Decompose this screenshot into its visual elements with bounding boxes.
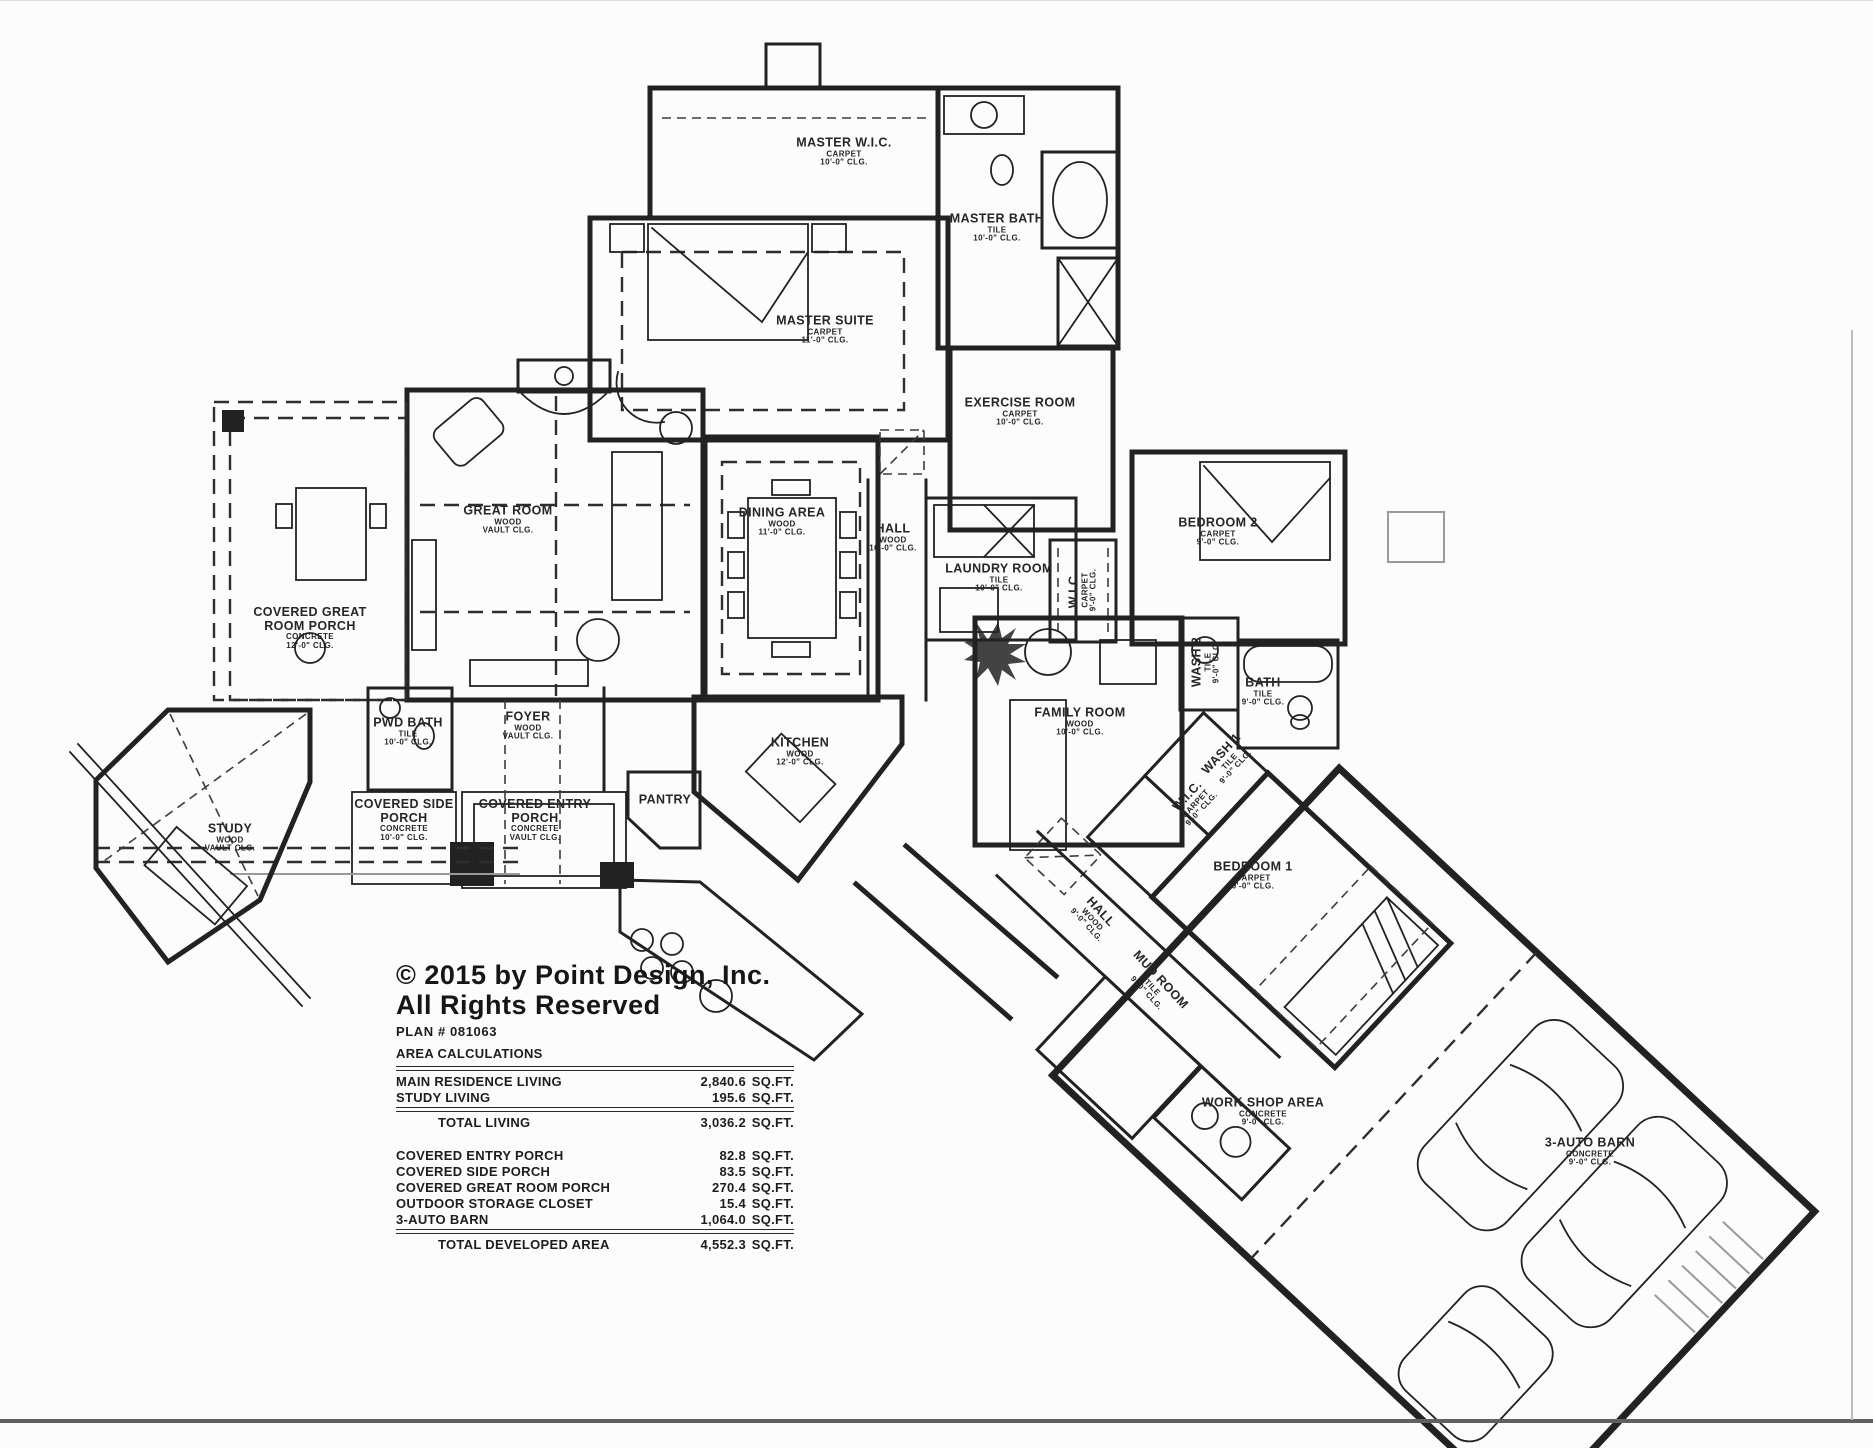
copyright-line2: All Rights Reserved bbox=[396, 990, 771, 1020]
room-label-dining-area: DINING AREAWOOD11'-0" CLG. bbox=[707, 507, 857, 538]
room-label-wic-family: W.I.C.CARPET9'-0" CLG. bbox=[1132, 737, 1257, 868]
room-label-family-room: FAMILY ROOMWOOD10'-0" CLG. bbox=[1005, 707, 1155, 738]
room-label-wic-hall: W.I.C.CARPET9'-0" CLG. bbox=[1068, 515, 1099, 665]
room-label-bedroom-2: BEDROOM 2CARPET9'-0" CLG. bbox=[1143, 517, 1293, 548]
area-row-entry-porch: COVERED ENTRY PORCH 82.8 SQ.FT. bbox=[396, 1148, 794, 1163]
room-label-covered-great-room-porch: COVERED GREAT ROOM PORCHCONCRETE12'-0" C… bbox=[235, 606, 385, 650]
room-label-covered-entry-porch: COVERED ENTRY PORCHCONCRETEVAULT CLG. bbox=[460, 798, 610, 842]
area-row-great-room-porch: COVERED GREAT ROOM PORCH 270.4 SQ.FT. bbox=[396, 1180, 794, 1195]
room-label-bath: BATHTILE9'-0" CLG. bbox=[1188, 677, 1338, 708]
rule bbox=[396, 1107, 794, 1112]
room-label-wash-1: WASH 1TILE9'-0" CLG. bbox=[1166, 695, 1291, 826]
room-label-hall-main: HALLWOOD10'-0" CLG. bbox=[818, 523, 968, 554]
room-label-foyer: FOYERWOODVAULT CLG. bbox=[453, 711, 603, 742]
copyright-block: © 2015 by Point Design, Inc. All Rights … bbox=[396, 960, 771, 1039]
room-label-master-bath: MASTER BATHTILE10'-0" CLG. bbox=[922, 213, 1072, 244]
area-row-total-developed: TOTAL DEVELOPED AREA 4,552.3 SQ.FT. bbox=[396, 1237, 794, 1252]
room-label-mud-room: MUD ROOMTILE9'-0" CLG. bbox=[1092, 921, 1217, 1052]
area-calc-title: AREA CALCULATIONS bbox=[396, 1046, 794, 1064]
rule bbox=[396, 1066, 794, 1071]
scan-edge-bottom bbox=[0, 1419, 1873, 1423]
room-label-work-shop-area: WORK SHOP AREACONCRETE9'-0" CLG. bbox=[1188, 1097, 1338, 1128]
room-labels: MASTER W.I.C.CARPET10'-0" CLG.MASTER BAT… bbox=[0, 0, 1873, 1448]
spacer bbox=[396, 1131, 794, 1147]
copyright-line1: © 2015 by Point Design, Inc. bbox=[396, 960, 771, 990]
room-label-bedroom-1: BEDROOM 1CARPET9'-0" CLG. bbox=[1178, 861, 1328, 892]
scan-edge-top bbox=[0, 0, 1873, 1]
area-calculations-table: AREA CALCULATIONS MAIN RESIDENCE LIVING … bbox=[396, 1046, 794, 1253]
room-label-pantry: PANTRY bbox=[590, 793, 740, 807]
area-row-side-porch: COVERED SIDE PORCH 83.5 SQ.FT. bbox=[396, 1164, 794, 1179]
rule bbox=[396, 1229, 794, 1234]
room-label-covered-side-porch: COVERED SIDE PORCHCONCRETE10'-0" CLG. bbox=[329, 798, 479, 842]
area-row-total-living: TOTAL LIVING 3,036.2 SQ.FT. bbox=[396, 1115, 794, 1130]
scan-edge-right bbox=[1851, 330, 1853, 1420]
scanned-floor-plan-page: MASTER W.I.C.CARPET10'-0" CLG.MASTER BAT… bbox=[0, 0, 1873, 1448]
plan-number: PLAN # 081063 bbox=[396, 1024, 771, 1039]
room-label-great-room: GREAT ROOMWOODVAULT CLG. bbox=[433, 505, 583, 536]
room-label-master-wic: MASTER W.I.C.CARPET10'-0" CLG. bbox=[769, 137, 919, 168]
area-row-main-residence: MAIN RESIDENCE LIVING 2,840.6 SQ.FT. bbox=[396, 1074, 794, 1089]
room-label-pwd-bath: PWD BATHTILE10'-0" CLG. bbox=[333, 717, 483, 748]
room-label-auto-barn: 3-AUTO BARNCONCRETE9'-0" CLG. bbox=[1515, 1137, 1665, 1168]
room-label-kitchen: KITCHENWOOD12'-0" CLG. bbox=[725, 737, 875, 768]
room-label-laundry-room: LAUNDRY ROOMTILE10'-0" CLG. bbox=[924, 563, 1074, 594]
room-label-master-suite: MASTER SUITECARPET11'-0" CLG. bbox=[750, 315, 900, 346]
room-label-hall-wing: HALLWOOD9'-0" CLG. bbox=[1032, 853, 1157, 984]
area-row-storage-closet: OUTDOOR STORAGE CLOSET 15.4 SQ.FT. bbox=[396, 1196, 794, 1211]
area-row-study-living: STUDY LIVING 195.6 SQ.FT. bbox=[396, 1090, 794, 1105]
room-label-wash-2: WASH 2TILE9'-0" CLG. bbox=[1191, 587, 1222, 737]
area-row-auto-barn: 3-AUTO BARN 1,064.0 SQ.FT. bbox=[396, 1212, 794, 1227]
room-label-study: STUDYWOODVAULT CLG. bbox=[155, 823, 305, 854]
room-label-exercise-room: EXERCISE ROOMCARPET10'-0" CLG. bbox=[945, 397, 1095, 428]
